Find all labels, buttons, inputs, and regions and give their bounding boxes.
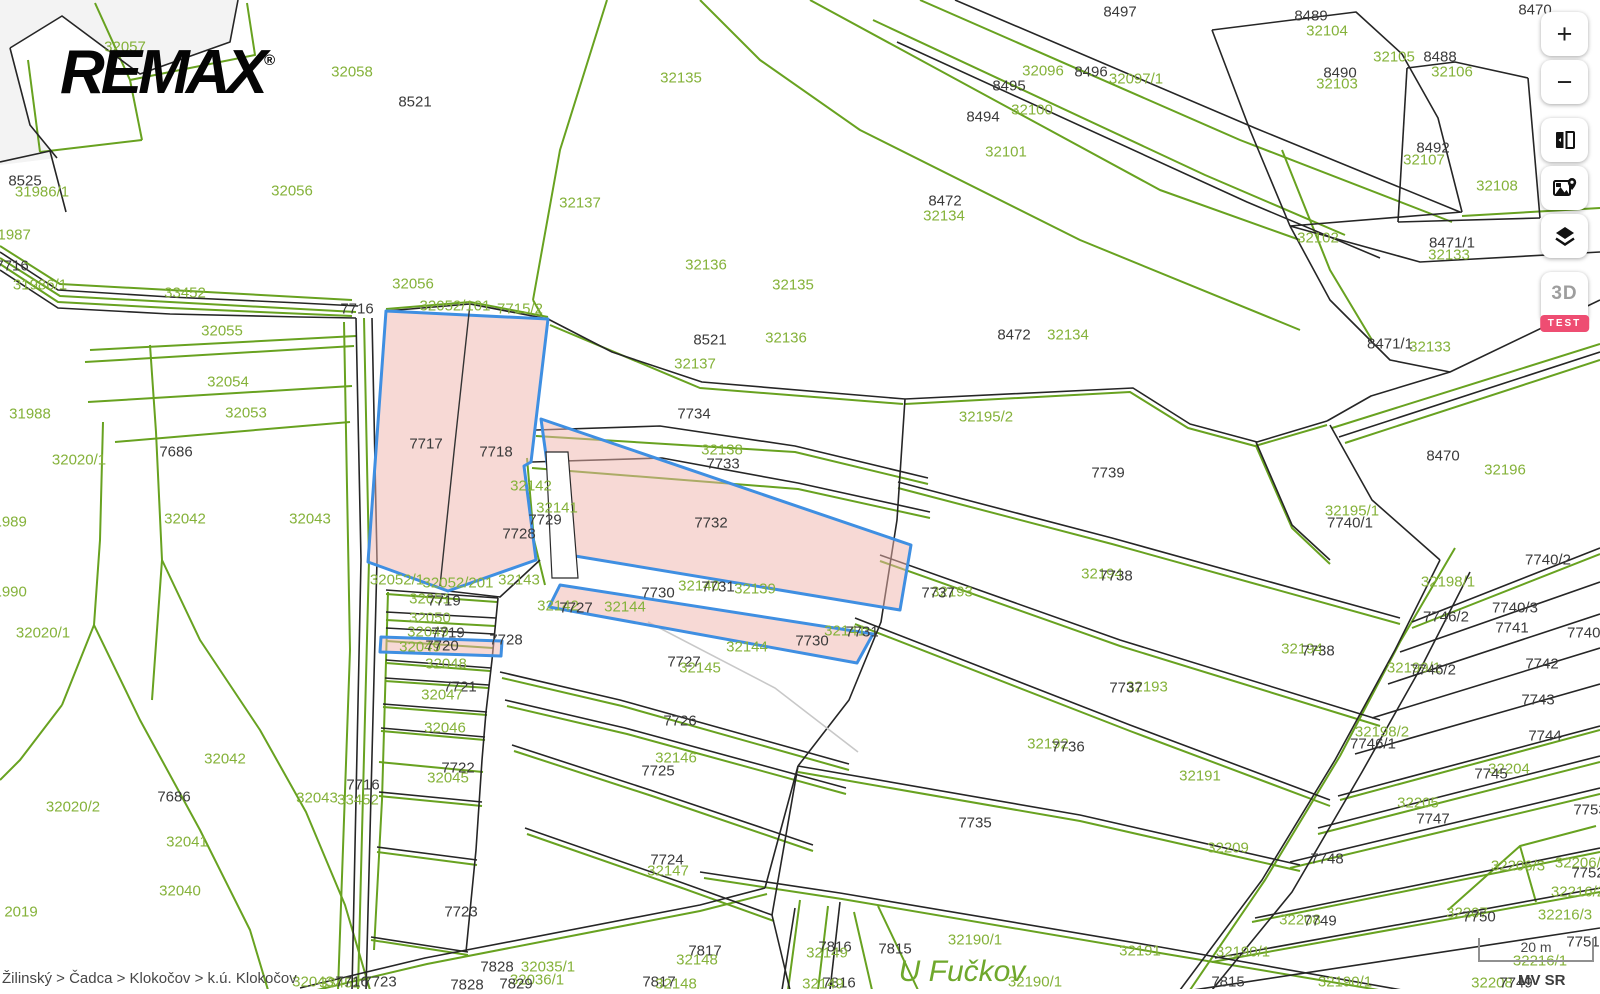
parcel-boundary-line [386, 612, 496, 618]
parcel-boundary-line [1318, 756, 1600, 828]
landuse-boundary-line [514, 751, 813, 851]
map-controls: + − 3D [1541, 12, 1588, 328]
landuse-boundary-line [854, 912, 872, 989]
parcel-boundary-line [1212, 30, 1290, 226]
parcel-boundary-line [1212, 12, 1402, 54]
landuse-boundary-line [1412, 554, 1600, 628]
parcel-boundary-line [1372, 648, 1600, 718]
parcel-boundary-line [898, 482, 1400, 618]
parcel-boundary-line [880, 555, 1380, 720]
parcel-boundary-line [505, 700, 846, 788]
landuse-boundary-line [300, 894, 767, 989]
parcel-boundary-line [1256, 442, 1330, 560]
landuse-boundary-line [40, 140, 142, 152]
parcel-boundary-line [500, 672, 849, 764]
layers-icon [1552, 224, 1578, 248]
parcel-boundary-line [1290, 788, 1600, 862]
landuse-boundary-line [810, 0, 1300, 240]
parcel-boundary-line [1338, 726, 1600, 796]
3d-label: 3D [1551, 283, 1577, 305]
parcel-boundary-line [386, 590, 498, 598]
test-badge: TEST [1540, 315, 1590, 332]
landuse-boundary-line [1345, 360, 1600, 443]
photomap-button[interactable] [1541, 166, 1588, 210]
parcel-boundary-line [366, 318, 377, 989]
landuse-boundary-line [1252, 852, 1600, 922]
landuse-boundary-line [379, 762, 483, 772]
map-attribution: MV SR [1518, 972, 1566, 989]
parcel-boundary-line [0, 270, 356, 318]
parcel-boundary-line [1212, 572, 1470, 989]
landuse-boundary-line [1256, 446, 1330, 564]
parcel-boundary-line [1407, 62, 1528, 78]
parcel-boundary-line [300, 888, 765, 988]
parcel-boundary-line [905, 388, 1327, 442]
landuse-boundary-line [1332, 344, 1600, 428]
breadcrumb[interactable]: Žilinský > Čadca > Klokočov > k.ú. Kloko… [2, 970, 297, 987]
map-canvas[interactable]: 3205732058852132135849732096849632097/18… [0, 0, 1600, 989]
landuse-boundary-line [818, 906, 828, 989]
place-name-label: U Fučkov [899, 955, 1026, 989]
parcel-boundary-line [548, 319, 905, 399]
zoom-in-button[interactable]: + [1541, 12, 1588, 56]
parcel-boundary-line [1412, 548, 1600, 622]
parcel-boundary-line [700, 872, 1430, 989]
landuse-boundary-line [62, 422, 103, 705]
landuse-boundary-line [700, 0, 1300, 330]
parcel-boundary-line [1330, 425, 1440, 560]
landuse-boundary-line [94, 625, 268, 989]
photo-map-pin-icon [1552, 176, 1578, 200]
parcel-boundary-line [955, 0, 1460, 212]
highlighted-parcel[interactable] [368, 311, 548, 591]
registered-mark: ® [264, 52, 275, 69]
compare-maps-icon [1553, 128, 1577, 152]
parcel-boundary-line [765, 766, 798, 888]
landuse-boundary-line [920, 0, 1452, 222]
layers-button[interactable] [1541, 214, 1588, 258]
landuse-boundary-line [0, 705, 62, 780]
scale-bar-label: 20 m [1480, 939, 1592, 955]
parcel-boundary-line [830, 902, 840, 989]
parcel-boundary-line [1290, 212, 1462, 226]
landuse-boundary-line [533, 0, 607, 300]
3d-view-button[interactable]: 3D TEST [1541, 272, 1588, 324]
landuse-boundary-line [855, 624, 1330, 806]
parcel-boundary-line [512, 745, 813, 845]
landuse-boundary-line [798, 772, 1300, 871]
landuse-boundary-line [162, 560, 370, 989]
compare-maps-button[interactable] [1541, 118, 1588, 162]
landuse-boundary-line [502, 678, 849, 770]
scale-bar: 20 m [1478, 938, 1594, 962]
parcel-boundary-line [1528, 78, 1540, 218]
landuse-boundary-line [704, 878, 1432, 989]
parcel-map-svg [0, 0, 1600, 989]
zoom-out-button[interactable]: − [1541, 60, 1588, 104]
landuse-boundary-line [1520, 846, 1536, 902]
landuse-boundary-line [550, 325, 903, 404]
landuse-boundary-line [115, 422, 350, 442]
parcel-boundary-line [1398, 218, 1540, 222]
landuse-boundary-line [386, 620, 495, 626]
landuse-boundary-line [88, 386, 352, 402]
parcel-boundary-line [371, 937, 468, 952]
parcel-boundary-line [1398, 68, 1407, 222]
parcel-boundary-line [855, 618, 1330, 800]
remax-logo: REMAX® [60, 42, 275, 104]
landuse-boundary-line [873, 20, 1345, 235]
parcel-boundary-line [1402, 54, 1462, 212]
highlighted-parcel[interactable] [380, 637, 502, 656]
landuse-boundary-line [905, 392, 1327, 446]
parcel-boundary-line [386, 628, 494, 634]
parcel-boundary-line [525, 828, 772, 915]
